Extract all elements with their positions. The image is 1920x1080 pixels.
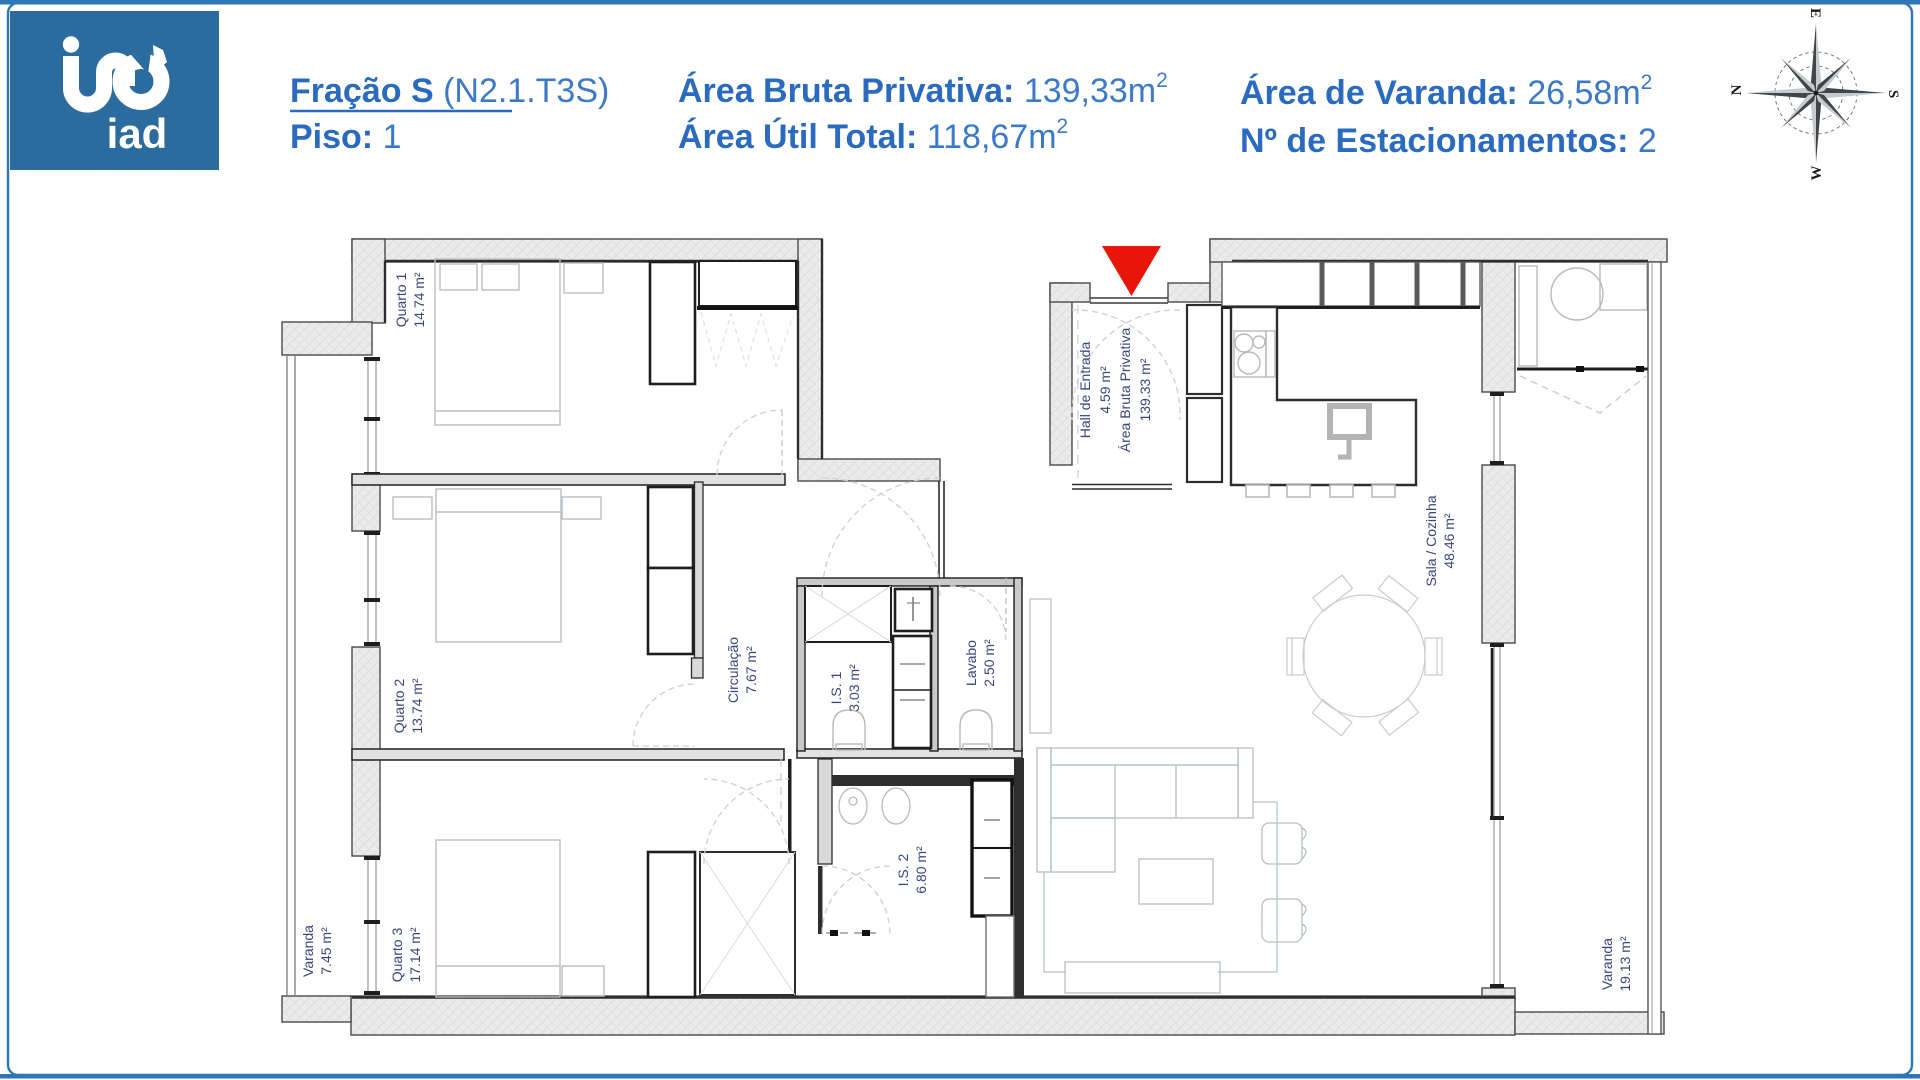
- svg-text:E: E: [1807, 8, 1823, 18]
- svg-text:Área Bruta Privativa: 139,33m2: Área Bruta Privativa: 139,33m2: [678, 69, 1168, 110]
- svg-text:Quarto 3: Quarto 3: [389, 928, 405, 983]
- svg-text:13.74 m²: 13.74 m²: [409, 678, 425, 734]
- svg-text:17.14 m²: 17.14 m²: [407, 927, 423, 983]
- svg-text:Varanda: Varanda: [1599, 938, 1615, 990]
- svg-text:14.74 m²: 14.74 m²: [411, 272, 427, 328]
- svg-text:Lavabo: Lavabo: [963, 640, 979, 686]
- svg-text:Área de Varanda: 26,58m2: Área de Varanda: 26,58m2: [1240, 71, 1652, 112]
- svg-text:139.33 m²: 139.33 m²: [1137, 358, 1153, 421]
- svg-text:S: S: [1885, 90, 1901, 98]
- svg-text:Quarto 1: Quarto 1: [393, 273, 409, 328]
- svg-text:2.50 m²: 2.50 m²: [981, 639, 997, 687]
- svg-text:3.03 m²: 3.03 m²: [846, 664, 862, 712]
- svg-text:I.S. 2: I.S. 2: [895, 853, 911, 886]
- svg-text:Quarto 2: Quarto 2: [391, 679, 407, 734]
- svg-text:Sala / Cozinha: Sala / Cozinha: [1423, 495, 1439, 586]
- svg-text:48.46 m²: 48.46 m²: [1441, 513, 1457, 569]
- svg-text:6.80 m²: 6.80 m²: [913, 846, 929, 894]
- svg-text:Piso: 1: Piso: 1: [290, 118, 402, 156]
- svg-text:Varanda: Varanda: [300, 925, 316, 977]
- svg-text:Área Bruta Privativa: Área Bruta Privativa: [1117, 328, 1133, 453]
- svg-text:4.59 m²: 4.59 m²: [1097, 366, 1113, 414]
- svg-text:7.67 m²: 7.67 m²: [743, 646, 759, 694]
- svg-text:7.45 m²: 7.45 m²: [318, 927, 334, 975]
- svg-text:iad: iad: [107, 110, 168, 157]
- svg-text:Área Útil Total: 118,67m2: Área Útil Total: 118,67m2: [678, 115, 1068, 156]
- svg-text:19.13 m²: 19.13 m²: [1617, 936, 1633, 992]
- svg-text:W: W: [1809, 166, 1825, 181]
- svg-text:I.S. 1: I.S. 1: [828, 671, 844, 704]
- svg-text:Hall de Entrada: Hall de Entrada: [1077, 342, 1093, 439]
- svg-text:Nº de Estacionamentos: 2: Nº de Estacionamentos: 2: [1240, 122, 1657, 160]
- svg-text:Fração S (N2.1.T3S): Fração S (N2.1.T3S): [290, 72, 609, 110]
- svg-text:N: N: [1729, 84, 1745, 95]
- svg-text:Circulação: Circulação: [725, 637, 741, 703]
